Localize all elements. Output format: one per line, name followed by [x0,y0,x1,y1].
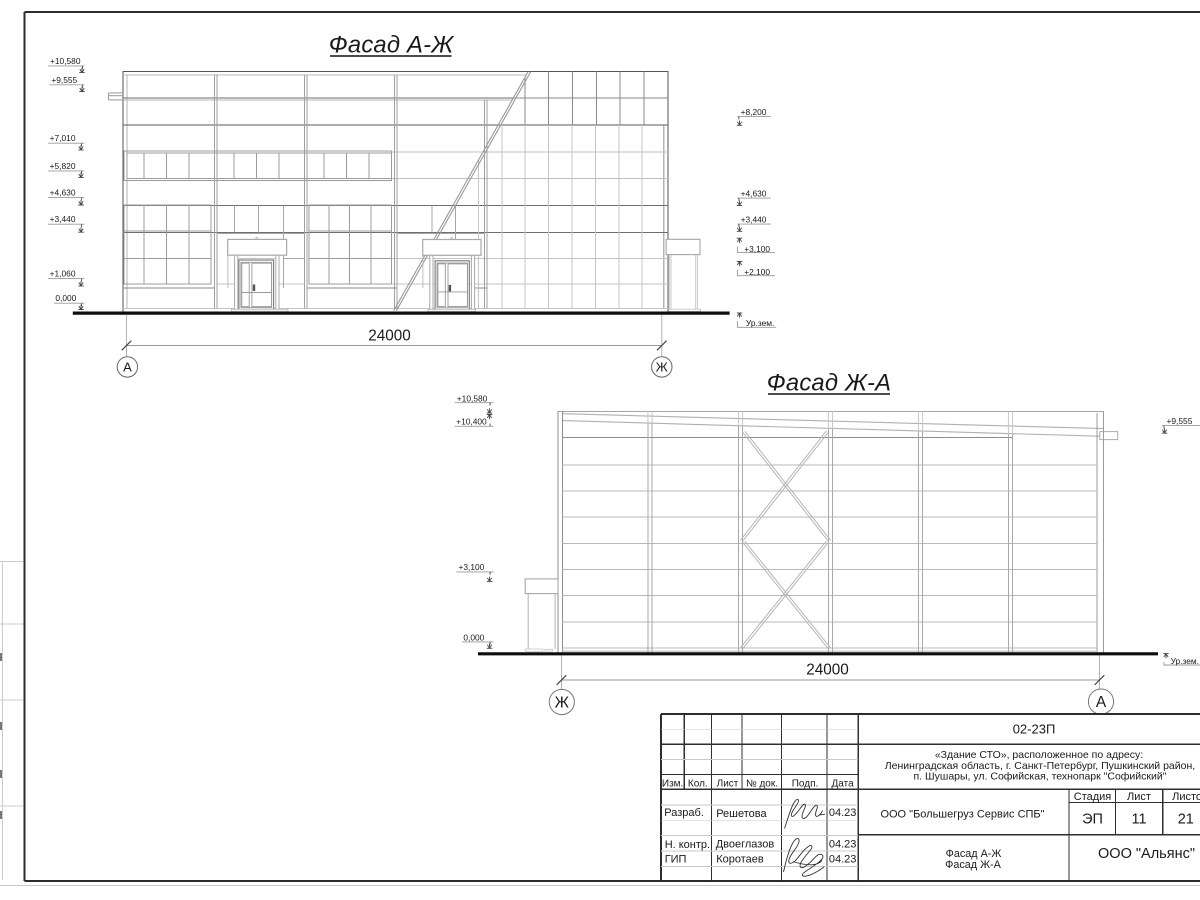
svg-text:Фасад Ж-А: Фасад Ж-А [945,859,1001,871]
svg-text:Двоеглазов: Двоеглазов [716,838,775,850]
svg-text:0,000: 0,000 [463,632,484,642]
svg-text:+3,440: +3,440 [50,214,76,224]
svg-text:Ур.зем.: Ур.зем. [746,318,774,328]
svg-text:24000: 24000 [806,662,849,679]
svg-text:А: А [1096,694,1107,711]
svg-text:Коротаев: Коротаев [716,853,764,865]
svg-text:+9,555: +9,555 [1167,416,1193,426]
svg-text:Лист: Лист [1127,791,1151,803]
svg-text:21: 21 [1178,811,1194,827]
svg-text:ООО "Альянс": ООО "Альянс" [1098,846,1195,862]
svg-text:+8,200: +8,200 [741,107,767,117]
svg-text:+10,580: +10,580 [50,56,81,66]
svg-text:Кол.: Кол. [688,779,708,790]
svg-text:+3,100: +3,100 [458,562,484,572]
svg-text:Подп.: Подп. [792,779,819,790]
svg-text:Н. контр.: Н. контр. [665,839,710,851]
svg-text:ЭП: ЭП [1082,811,1103,827]
svg-text:ГИП: ГИП [665,853,687,865]
svg-text:Фасад А-Ж: Фасад А-Ж [946,848,1002,860]
svg-text:11: 11 [1131,811,1146,827]
svg-text:+3,100: +3,100 [744,244,770,254]
svg-text:02-23П: 02-23П [1013,722,1056,737]
svg-text:04.23: 04.23 [829,838,857,850]
svg-text:+3,440: +3,440 [741,215,767,225]
svg-text:04.23: 04.23 [829,807,857,819]
svg-text:№ док.: № док. [746,779,778,790]
svg-text:Решетова: Решетова [716,808,767,820]
svg-text:24000: 24000 [368,328,411,345]
svg-text:04.23: 04.23 [829,853,857,865]
svg-text:Дата: Дата [832,778,855,789]
svg-text:0,000: 0,000 [55,293,76,303]
svg-text:+7,010: +7,010 [50,133,76,143]
svg-text:+10,580: +10,580 [457,393,488,403]
svg-text:+9,555: +9,555 [51,75,77,85]
svg-text:+4,630: +4,630 [50,188,76,198]
svg-text:Стадия: Стадия [1074,791,1112,803]
svg-text:Лист: Лист [717,779,739,790]
svg-text:Ж: Ж [656,360,668,375]
svg-text:А: А [123,360,132,375]
svg-text:+2,100: +2,100 [744,267,770,277]
svg-text:Ж: Ж [555,695,570,712]
svg-text:Разраб.: Разраб. [664,807,704,819]
svg-text:Ур.зем.: Ур.зем. [1171,656,1199,666]
svg-text:ООО "Большегруз Сервис СПБ": ООО "Большегруз Сервис СПБ" [880,808,1044,820]
svg-text:Фасад Ж-А: Фасад Ж-А [767,370,891,397]
svg-text:Фасад А-Ж: Фасад А-Ж [329,32,454,59]
svg-text:+1,060: +1,060 [50,269,76,279]
svg-text:+5,820: +5,820 [50,161,76,171]
svg-text:Листов: Листов [1172,791,1200,803]
svg-text:+10,400: +10,400 [456,417,487,427]
svg-text:Изм.: Изм. [662,779,683,790]
svg-text:+4,630: +4,630 [741,188,767,198]
svg-text:п. Шушары, ул. Софийская, техн: п. Шушары, ул. Софийская, технопарк "Соф… [914,770,1167,782]
